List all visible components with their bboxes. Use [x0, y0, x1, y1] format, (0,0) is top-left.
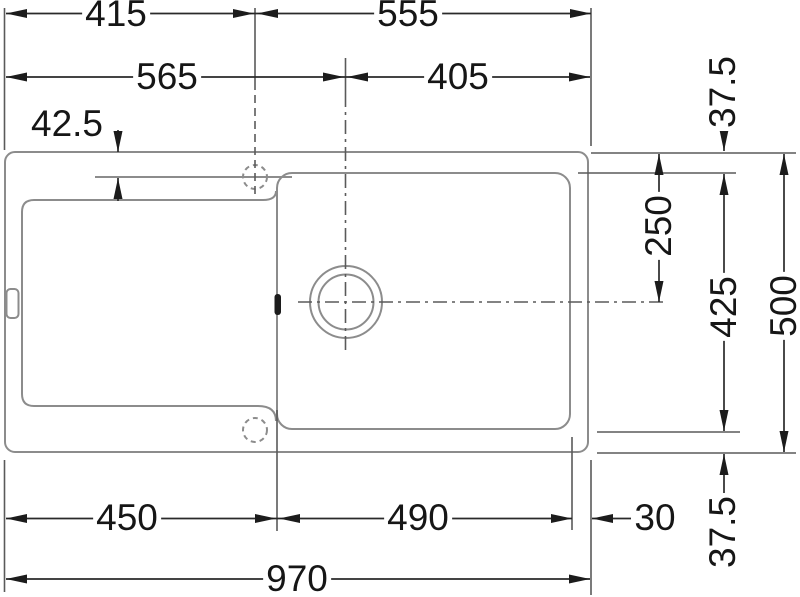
- dim-label-37-5-top: 37.5: [704, 53, 742, 131]
- basin-overflow-mark: [275, 294, 282, 315]
- dim-label-42-5: 42.5: [28, 105, 106, 143]
- sink-technical-drawing: 415 555 565 405 42.5 37.5 250 425 500 37…: [0, 0, 800, 597]
- dim-label-250: 250: [640, 192, 678, 260]
- dimension-lines: [6, 14, 784, 580]
- drainboard-outline: [22, 191, 276, 421]
- tap-hole-bottom: [243, 418, 267, 442]
- dim-label-555: 555: [374, 0, 442, 33]
- dim-label-490: 490: [384, 499, 452, 537]
- dim-label-565: 565: [133, 58, 201, 96]
- dim-label-970: 970: [263, 560, 331, 597]
- dim-label-37-5-bottom: 37.5: [704, 493, 742, 571]
- dim-label-405: 405: [424, 58, 492, 96]
- dim-label-450: 450: [93, 499, 161, 537]
- dim-label-415: 415: [82, 0, 150, 33]
- sink-basin: [277, 173, 570, 429]
- dim-label-425: 425: [705, 273, 743, 341]
- overflow-slot: [7, 289, 19, 318]
- dim-label-500: 500: [765, 272, 800, 340]
- dim-label-30: 30: [631, 499, 678, 537]
